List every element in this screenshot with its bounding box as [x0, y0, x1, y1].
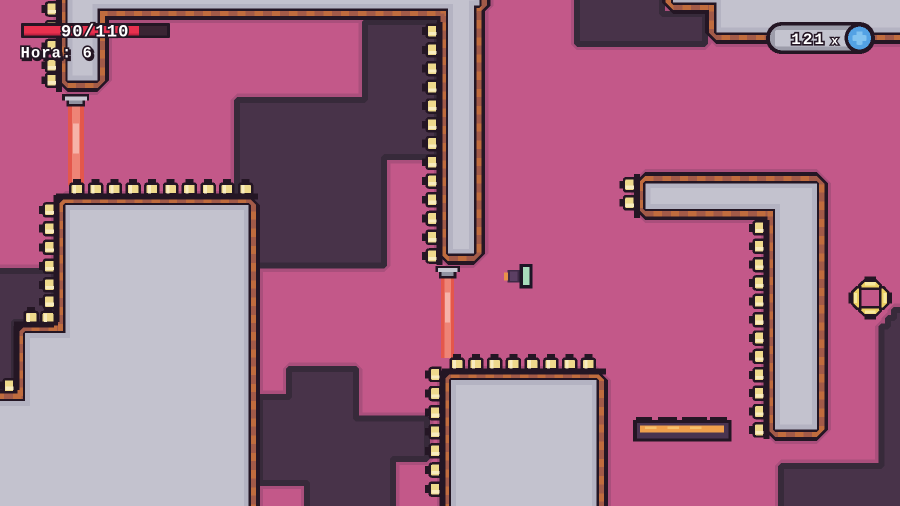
svg-text:121: 121 [791, 31, 826, 49]
svg-text:90/110: 90/110 [61, 23, 130, 42]
svg-text:Hora: 6: Hora: 6 [21, 45, 93, 63]
svg-text:x: x [831, 35, 838, 49]
